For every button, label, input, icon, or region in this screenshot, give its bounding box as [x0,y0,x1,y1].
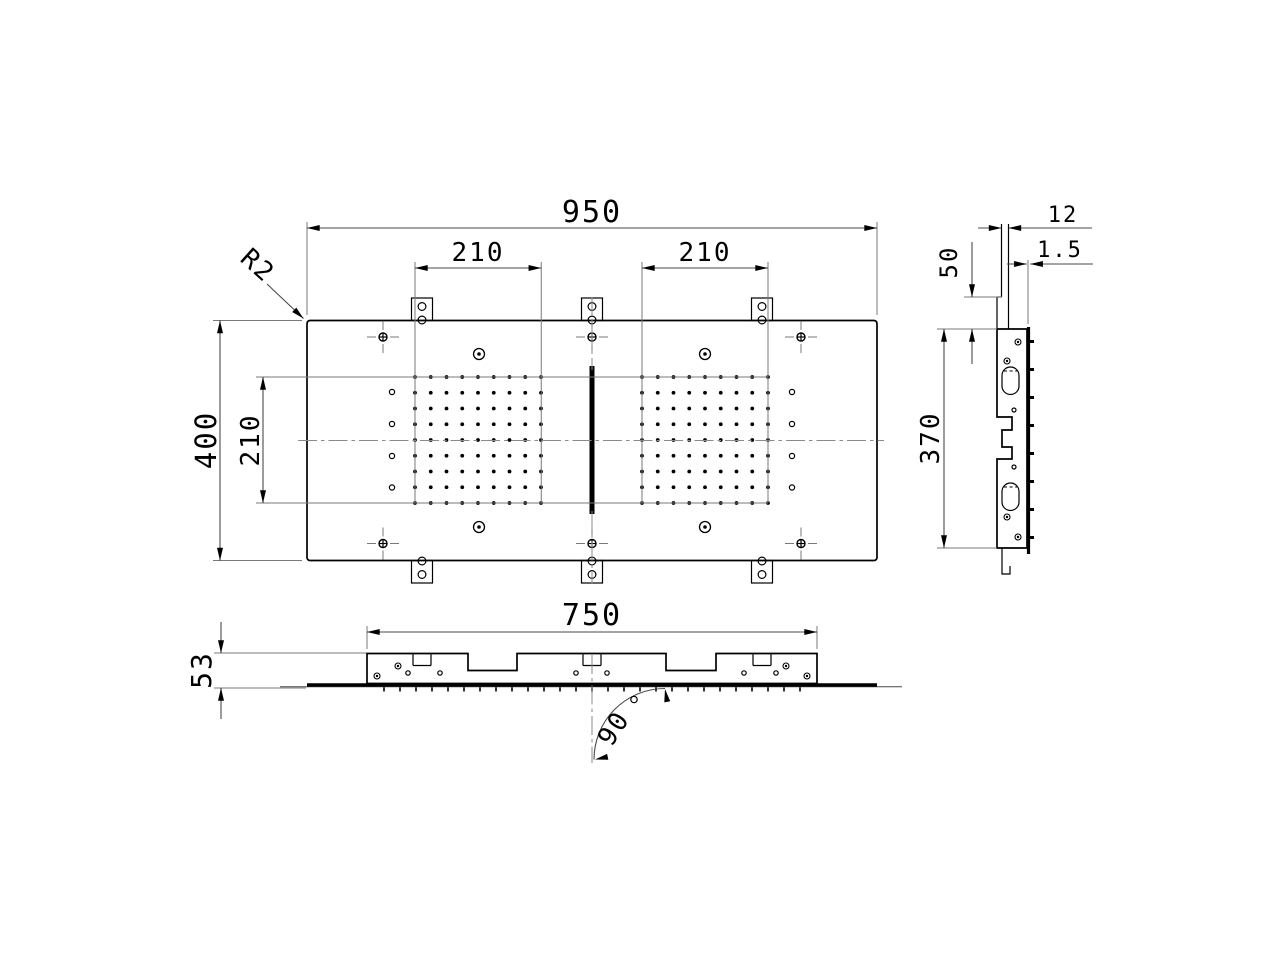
nozzle-dot [656,470,660,474]
front-view: 750 53 90 [185,598,902,763]
nozzle-dot [476,470,480,474]
dim-text-12: 12 [1048,203,1079,228]
nozzle-dot [476,422,480,426]
nozzle-dot [750,470,754,474]
nozzle-dot [460,470,464,474]
nozzle-dot [719,470,723,474]
side-hole [789,421,794,426]
side-hole [789,485,794,490]
side-hole [789,453,794,458]
screw-center [785,665,787,667]
nozzle-dot [429,485,433,489]
dim-text-1p5: 1.5 [1037,238,1083,263]
edge-tick [1030,536,1035,539]
nozzle-dot [719,422,723,426]
nozzle-dot [508,454,512,458]
dim-text-400: 400 [189,411,223,469]
nozzle-dot [703,422,707,426]
side-hole [789,389,794,394]
side-hole [389,389,394,394]
edge-tick [1030,452,1035,455]
top-view: 950 210 210 400 210 R2 [189,195,884,584]
nozzle-dot [750,407,754,411]
dim-text-210-left: 210 [452,238,505,268]
nozzle-dot [672,407,676,411]
nozzle-dot [735,454,739,458]
nozzle-dot [508,485,512,489]
nozzle-dot [508,407,512,411]
nozzle-dot [445,454,449,458]
side-view: 12 1.5 50 370 [916,203,1093,574]
screw-center [1017,536,1019,538]
nozzle-dot [672,485,676,489]
edge-tick [1030,424,1035,427]
nozzle-dot [750,485,754,489]
nozzle-dot [508,438,512,442]
nozzle-dot [508,391,512,395]
nozzle-dot [703,391,707,395]
small-hole [406,671,410,675]
nozzle-dot [750,454,754,458]
nozzle-dot [750,422,754,426]
extension-lines-top-view [213,222,877,561]
nozzle-dot [687,470,691,474]
dim-text-50: 50 [935,246,963,279]
small-hole [438,671,442,675]
nozzle-dot [476,391,480,395]
target-dot [703,352,707,356]
tab-hole [418,303,426,311]
dim-text-210-right: 210 [679,238,732,268]
dim-text-r2: R2 [234,243,280,289]
tab-bottom [752,561,773,584]
nozzle-dot [735,391,739,395]
nozzle-dot [445,391,449,395]
extension-lines-front-view [214,626,817,688]
nozzle-dot [429,391,433,395]
nozzle-dot [656,407,660,411]
nozzle-dot [687,485,691,489]
nozzle-dot [703,407,707,411]
tab-hole [758,303,766,311]
nozzle-dot [476,454,480,458]
nozzle-dot [656,422,660,426]
nozzle-dot [492,485,496,489]
nozzle-dot [476,407,480,411]
nozzle-dot [429,454,433,458]
nozzle-dot [445,470,449,474]
target-dot [477,525,481,529]
nozzle-dot [703,485,707,489]
small-hole [574,671,578,675]
bottom-hook [1002,548,1010,574]
screw-center [397,665,399,667]
nozzle-dot [672,454,676,458]
nozzle-dot [656,485,660,489]
nozzle-dot [672,391,676,395]
tab-bottom [412,561,433,584]
dim-text-90: 90 [592,706,636,752]
nozzle-dot [735,407,739,411]
target-dot [477,352,481,356]
nozzle-dot [460,422,464,426]
nozzle-dot [735,485,739,489]
extension-lines-side-view [937,260,1028,548]
nozzle-dot [719,391,723,395]
edge-tick [1030,368,1035,371]
dim-text-210-vertical: 210 [236,414,266,467]
degree-symbol [631,696,637,702]
technical-drawing-canvas: 950 210 210 400 210 R2 [0,0,1280,960]
nozzle-dot [687,454,691,458]
nozzle-dot [687,391,691,395]
edge-tick [1030,508,1035,511]
nozzle-dot [523,470,527,474]
bracket-body-outline [997,329,1027,548]
small-hole [774,671,778,675]
screw-center [1017,341,1019,343]
nozzle-dot [687,407,691,411]
nozzle-dot [492,391,496,395]
nozzle-dot [523,485,527,489]
nozzle-dot [460,391,464,395]
nozzle-dot [492,422,496,426]
glass-edge-ticks [1030,340,1035,539]
nozzle-dot [719,407,723,411]
screw-center [376,675,378,677]
tab-hole [758,571,766,579]
nozzle-dot [523,422,527,426]
small-hole [605,671,609,675]
nozzle-dot [460,454,464,458]
nozzle-dot [476,485,480,489]
dim-text-950: 950 [562,195,622,230]
edge-tick [1030,340,1035,343]
nozzle-dot [445,422,449,426]
nozzle-dot [460,407,464,411]
nozzle-dot [687,422,691,426]
nozzle-dot [672,470,676,474]
dim-text-370: 370 [916,412,946,465]
nozzle-dot [735,422,739,426]
nozzle-dot [672,422,676,426]
side-hole [389,421,394,426]
dim-text-750: 750 [562,598,622,633]
screw-center [1006,360,1008,362]
nozzle-dot [492,470,496,474]
screw-center [1006,516,1008,518]
dim-text-53: 53 [185,651,218,689]
nozzle-dot [719,454,723,458]
nozzle-dot [492,454,496,458]
nozzle-dot [523,407,527,411]
side-hole [389,485,394,490]
small-hole [742,671,746,675]
pin-hole-bottom [1012,465,1016,469]
nozzle-dot [508,470,512,474]
nozzle-dot [750,391,754,395]
tab-hole [418,571,426,579]
nozzle-dot [735,470,739,474]
angle-arrow-upper [662,688,670,702]
radius-leader-line [267,284,304,319]
angle-arrow-lower [594,754,608,763]
nozzle-dot [429,407,433,411]
nozzle-dot [523,454,527,458]
nozzle-dot [719,485,723,489]
nozzle-dot [508,422,512,426]
nozzle-dot [492,407,496,411]
nozzle-dot [656,391,660,395]
nozzle-dot [656,454,660,458]
side-hole [389,453,394,458]
pin-hole-top [1012,408,1016,412]
nozzle-dot [429,470,433,474]
nozzle-dot [429,422,433,426]
screw-center [806,675,808,677]
top-flange [997,224,1009,329]
nozzle-dot [445,407,449,411]
nozzle-dot [460,485,464,489]
nozzle-dot [523,391,527,395]
nozzle-dot [703,454,707,458]
nozzle-dot [703,470,707,474]
edge-tick [1030,396,1035,399]
tab-top [752,298,773,321]
edge-tick [1030,480,1035,483]
target-dot [703,525,707,529]
nozzle-dot [445,485,449,489]
